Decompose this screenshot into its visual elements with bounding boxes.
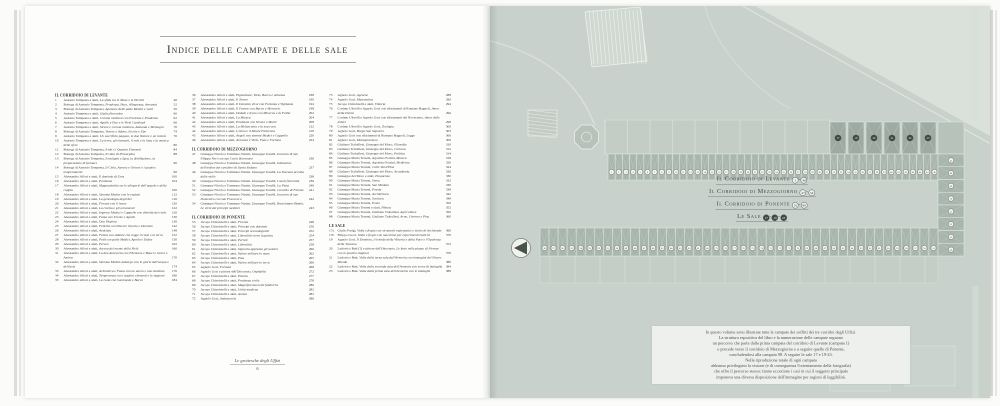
entry-number: 32 [55,260,64,269]
entry-number: 14 [55,166,64,175]
entry-number: 23 [329,269,338,274]
page-edge [19,10,21,396]
title-rules: Indice delle campate e delle sale [160,36,356,63]
entry-page-number: 104 [169,179,177,184]
page-edge [14,10,17,396]
legend-row: Il Corridoio di Ponente 55-98 [716,200,809,210]
index-entry: 20Ludovico Buti (?) e pittore dell'Ottoc… [329,247,451,256]
index-entry: 14Bottega di Antonio Tempesta, Il Cielo,… [55,166,177,175]
entry-text: Alessandro Allori e aiuti, La Gola con G… [64,278,170,283]
entry-page-number: 237 [306,166,314,171]
entry-number: 46 [192,138,201,143]
index-column: 36Alessandro Allori e aiuti, Pigmalione,… [192,93,314,301]
entry-number: 17 [55,184,64,193]
entry-text: Bottega di Antonio Tempesta, Il Cielo, A… [64,166,172,175]
entry-text: Giuseppe Maria Terreni, Giuliano Traball… [338,215,444,220]
hatched-building [528,110,557,138]
entry-page-number: 90 [171,161,177,166]
index-entry: 72Agnolo Gori, Ambasceria286 [192,297,314,302]
index-column: 73Agnolo Gori, Agraria28874Agnolo Gori, … [329,93,451,301]
entry-page-number: 296 [443,111,451,116]
page-title-block: Indice delle campate e delle sale [25,36,490,63]
entry-number: 21 [329,256,338,265]
index-page: Indice delle campate e delle sale IL COR… [25,6,490,398]
entry-number: 54 [192,202,201,211]
entry-page-number: 224 [306,138,314,143]
entry-text: Giuseppe Nicola e Tommaso Nasini, Giusep… [201,193,307,202]
index-entry: 35Alessandro Allori e aiuti, La Gola con… [55,278,177,283]
entry-page-number: 372 [443,242,451,247]
entry-number: 13 [55,157,64,166]
footer-book-title: Le grottesche degli Uffizi [25,358,490,363]
campata-badge: 23 [780,215,787,222]
section-header: IL CORRIDOIO DI MEZZOGIORNO [192,147,314,152]
entry-text: Giuseppe Nicola e Tommaso Nasini, Giusep… [201,152,307,161]
index-entry: 77Cosimo Ulivelli e Agnolo Gori con rifa… [329,116,451,125]
campata-badge: 46 [801,177,808,184]
tribuna-octagon [575,125,599,149]
entry-number: 47 [192,152,201,161]
entry-number: 53 [192,193,201,202]
entry-text: Alessandro Allori e aiuti, Magnanimità c… [64,184,170,193]
map-caption-text: In questo volume sono illustrate tutte l… [652,326,910,383]
entry-text: Agnolo Gori, Il Dominio, il trionfo dell… [338,238,444,247]
caption-line: imponeva una diversa disposizione dell'i… [657,374,905,380]
entry-number: 98 [329,215,338,220]
index-entry: 53Giuseppe Nicola e Tommaso Nasini, Gius… [192,193,314,202]
entry-number: 35 [55,278,64,283]
entry-text: Giuseppe Nicola e Tommaso Nasini, Giusep… [201,202,307,211]
index-entry: 49Giuseppe Nicola e Tommaso Nasini, Gius… [192,170,314,179]
index-columns-area: IL CORRIDOIO DI LEVANTE1Antonio Tempesta… [55,93,481,351]
entry-text: Agnolo Gori, Ambasceria [201,297,307,302]
legend-label: Le Sale [737,213,763,220]
entry-number: 76 [329,107,338,116]
sale-rooms: 171920212223 [830,122,964,154]
entry-page-number: 388 [443,269,451,274]
entry-text: Alessandro Allori e aiuti, Armonia e Vir… [201,138,307,143]
entry-text: Alessandro Allori e aiuti, Stemma Medici… [64,260,170,269]
page-footer: Le grottesche degli Uffizi 6 [25,358,490,384]
entry-page-number: 88 [171,152,177,157]
index-entry: 76Cosimo Ulivelli e Agnolo Gori con rifa… [329,107,451,116]
entry-page-number: 184 [169,278,177,283]
entry-number: 49 [192,170,201,179]
entry-text: Giuseppe Nicola e Tommaso Nasini, Giusep… [201,161,307,170]
index-entry: 17Alessandro Allori e aiuti, Magnanimità… [55,184,177,193]
book-spread: Indice delle campate e delle sale IL COR… [0,0,1000,406]
legend-label: Il Corridoio di Mezzogiorno [709,188,800,195]
entry-page-number: 241 [306,188,314,193]
index-entry: 47Giuseppe Nicola e Tommaso Nasini, Gius… [192,152,314,161]
section-header: LE SALE [329,224,451,229]
index-entry: 32Alessandro Allori e aiuti, Stemma Medi… [55,260,177,269]
entry-text: Cosimo Ulivelli e Agnolo Gori con rifaci… [338,116,444,125]
corridor-ponente: 9897969594939291908988878685848382818079… [540,228,938,256]
compass-icon [512,239,531,258]
map-legend: Il Corridoio di Levante 1-46Il Corridoio… [590,174,934,224]
campata-badge: 98 [801,202,808,209]
campata-badge: 54 [808,190,815,197]
index-entry: 10Antonio Tempesta e aiuti, La terra, gl… [55,139,177,148]
entry-page-number: 376 [443,251,451,256]
entry-text: Ludovico Buti, Volta della prima sala de… [338,269,444,274]
index-entry: 13Bottega di Antonio Tempesta, Esculapio… [55,157,177,166]
index-column: IL CORRIDOIO DI LEVANTE1Antonio Tempesta… [55,93,177,301]
entry-number: 19 [329,238,338,247]
index-entry: 98Giuseppe Maria Terreni, Giuliano Traba… [329,215,451,220]
entry-page-number: 242 [306,197,314,202]
legend-row: Il Corridoio di Mezzogiorno 47-54 [708,188,816,198]
footer-page-number: 6 [25,366,490,371]
entry-number: 77 [329,116,338,125]
entry-text: Cosimo Ulivelli e Agnolo Gori con rifaci… [338,107,444,116]
legend-label: Il Corridoio di Ponente [717,200,792,207]
index-entry: 19Agnolo Gori, Il Dominio, il trionfo de… [329,238,451,247]
entry-text: Antonio Tempesta e aiuti, La terra, gli … [64,139,172,148]
section-header: IL CORRIDOIO DI LEVANTE [55,93,177,98]
legend-row: Le Sale 17-19-23 [736,213,788,223]
corridor-mezzogiorno: 4748495051525354 [938,154,964,256]
entry-number: 20 [329,247,338,256]
entry-number: 31 [55,251,64,260]
map-page: 1719202122231234567891011121314151617181… [490,6,990,398]
entry-number: 72 [192,297,201,302]
page-title: Indice delle campate e delle sale [167,44,348,56]
entry-text: Giuseppe Nicola e Tommaso Nasini, Giusep… [201,170,307,179]
index-entry: 46Alessandro Allori e aiuti, Armonia e V… [192,138,314,143]
entry-text: Ludovico Buti, Volta della terza sala de… [338,256,444,265]
index-entry: 31Alessandro Allori e aiuti, La dea Ante… [55,251,177,260]
index-entry: 21Ludovico Buti, Volta della terza sala … [329,256,451,265]
entry-page-number: 166 [169,247,177,252]
entry-number: 48 [192,161,201,170]
entry-page-number: 170 [169,256,177,261]
map-caption-box: In questo volume sono illustrate tutte l… [652,326,910,384]
entry-text: Alessandro Allori e aiuti, La dea Anteve… [64,251,170,260]
legend-label: Il Corridoio di Levante [717,175,792,182]
legend-row: Il Corridoio di Levante 1-46 [716,175,808,185]
index-entry: 48Giuseppe Nicola e Tommaso Nasini, Gius… [192,161,314,170]
section-header: IL CORRIDOIO DI PONENTE [192,215,314,220]
page-edge [995,10,997,396]
entry-page-number: 370 [443,233,451,238]
entry-page-number: 360 [443,215,451,220]
entry-number: 10 [55,139,64,148]
footer-rule [230,365,285,366]
entry-page-number: 243 [306,206,314,211]
entry-text: Ludovico Buti (?) e pittore dell'Ottocen… [338,247,444,256]
index-entry: 23Ludovico Buti, Volta della prima sala … [329,269,451,274]
striped-building [585,7,647,67]
entry-page-number: 76 [171,134,177,139]
page-edge [990,10,993,396]
entry-page-number: 294 [443,102,451,107]
entry-page-number: 236 [306,157,314,162]
entry-text: Bottega di Antonio Tempesta, Esculapio e… [64,157,172,166]
index-entry: 54Giuseppe Nicola e Tommaso Nasini, Gius… [192,202,314,211]
entry-page-number: 286 [306,297,314,302]
index-columns: IL CORRIDOIO DI LEVANTE1Antonio Tempesta… [55,93,481,301]
